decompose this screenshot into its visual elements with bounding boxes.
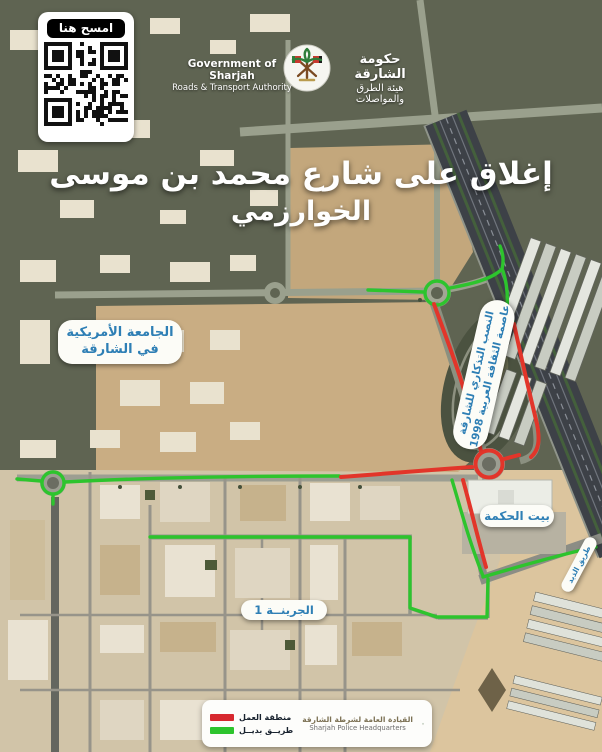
aus-label-line2: في الشارقة (62, 342, 178, 359)
legend-alt-route-row: طريــق بديــل (210, 726, 293, 735)
authority-name-english: Government of Sharjah Roads & Transport … (168, 58, 296, 93)
authority-name-arabic: حكومة الشارقة هيئة الطرق والمواصلات (332, 52, 428, 105)
police-name-block: القيادة العامة لشرطة الشارقة Sharjah Pol… (302, 715, 413, 732)
label-al-juraina: الجرينــة 1 (241, 600, 327, 620)
alt-route-swatch (210, 727, 234, 734)
gov-en-line2: Roads & Transport Authority (168, 83, 296, 93)
alt-route-label: طريــق بديــل (239, 726, 293, 735)
gov-ar-line1: حكومة الشارقة (332, 52, 428, 82)
qr-card: امسح هنا (38, 12, 134, 142)
police-name-arabic: القيادة العامة لشرطة الشارقة (302, 715, 413, 724)
rta-emblem-icon (283, 44, 331, 92)
label-american-university: الجامعة الأمريكية في الشارقة (58, 320, 182, 364)
work-zone-label: منطقة العمل (239, 713, 291, 722)
legend-work-zone-row: منطقة العمل (210, 713, 293, 722)
gov-en-line1: Government of Sharjah (168, 58, 296, 82)
legend-swatches: منطقة العمل طريــق بديــل (210, 713, 293, 735)
alternative-route-lines (17, 246, 596, 617)
police-name-english: Sharjah Police Headquarters (309, 724, 406, 732)
poster-title-line2: الخوارزمي (0, 196, 602, 228)
gov-ar-line2: هيئة الطرق والمواصلات (332, 83, 428, 105)
qr-scan-label: امسح هنا (47, 19, 125, 38)
work-zone-swatch (210, 714, 234, 721)
aus-label-line1: الجامعة الأمريكية (62, 325, 178, 342)
road-closure-poster: امسح هنا Government of Sharjah Roads & T… (0, 0, 602, 752)
poster-title-line1: إغلاق على شارع محمد بن موسى (0, 156, 602, 193)
legend-card: منطقة العمل طريــق بديــل القيادة العامة… (202, 700, 432, 747)
police-emblem-icon (422, 706, 424, 742)
label-bait-al-hikma: بيت الحكمة (480, 505, 554, 527)
poster-title: إغلاق على شارع محمد بن موسى الخوارزمي (0, 156, 602, 229)
qr-code-icon (44, 42, 128, 126)
